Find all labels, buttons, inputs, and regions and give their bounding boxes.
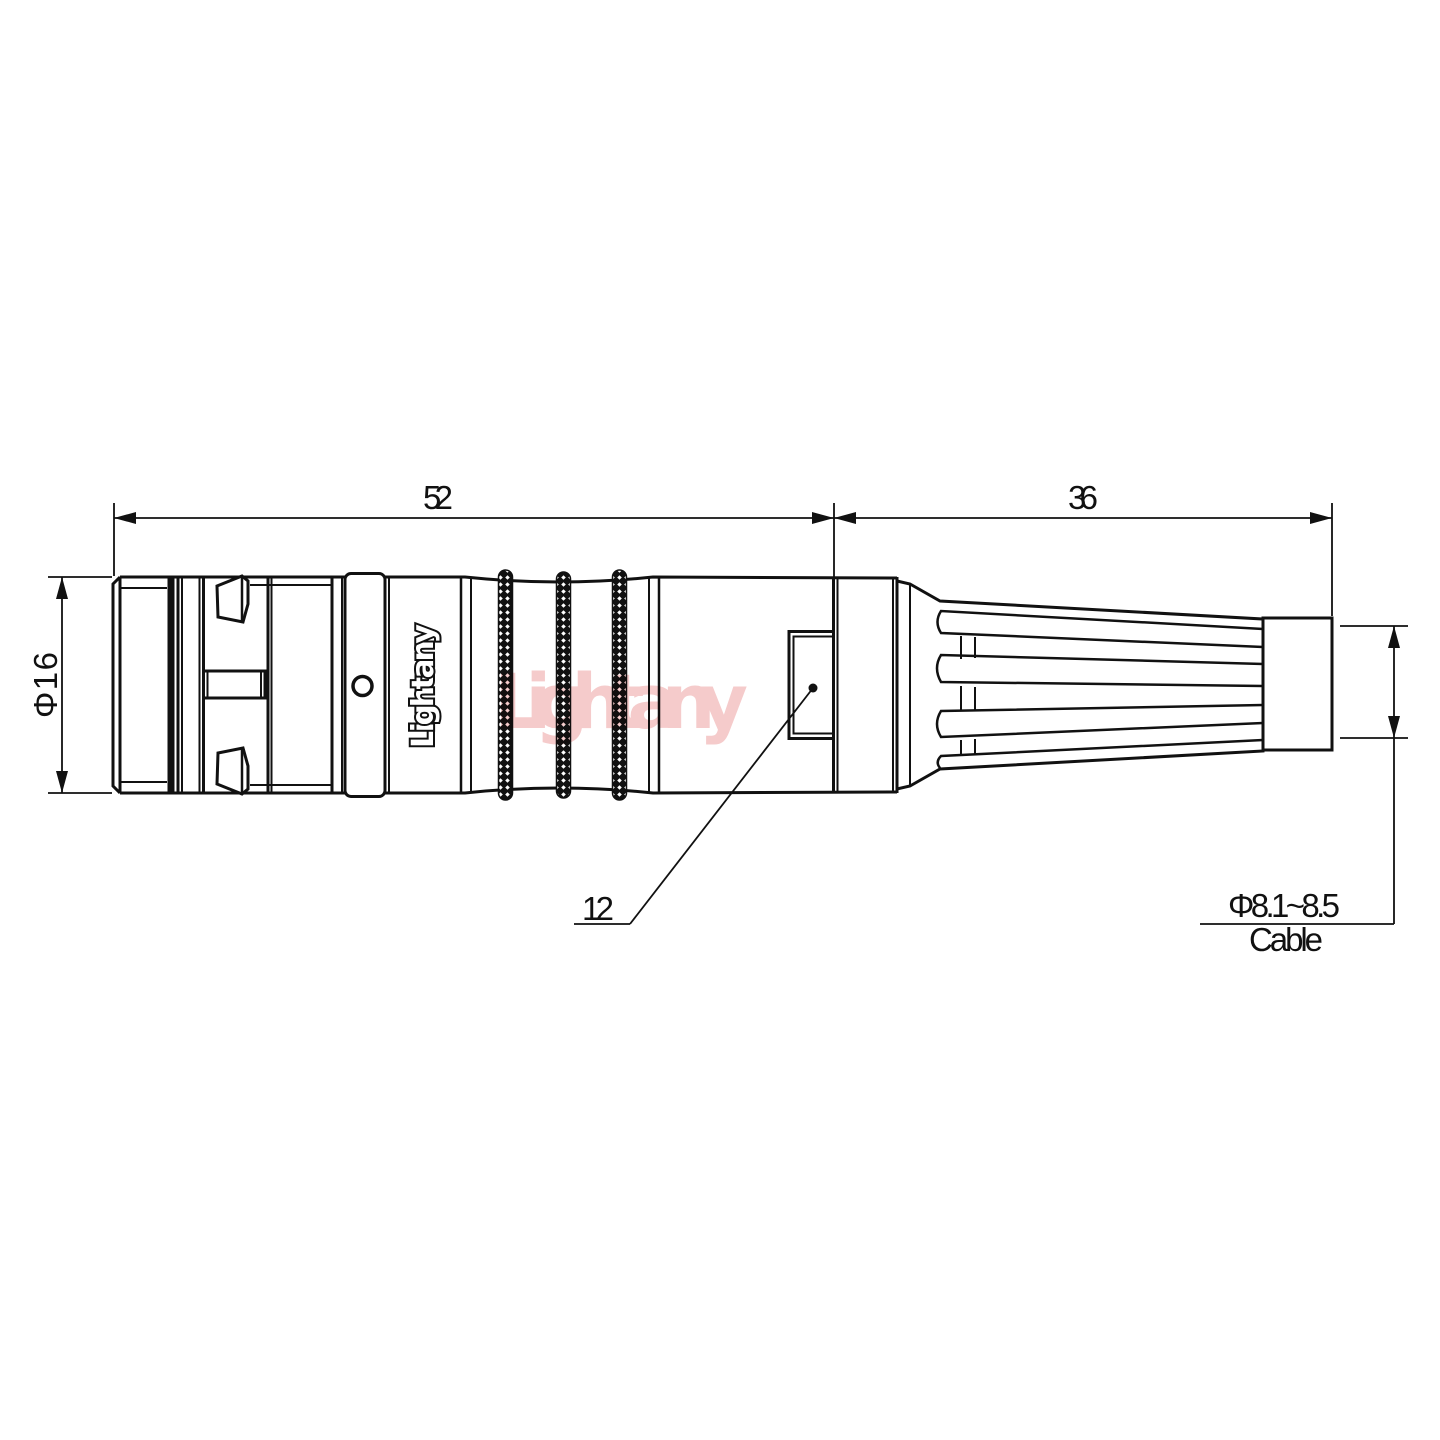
dim-12-label: 12: [582, 890, 614, 927]
technical-drawing: 52 36 Φ16 12 Φ8.1~8.5 Cable Lightany: [0, 0, 1440, 1440]
dim-36-label: 36: [1068, 479, 1098, 516]
dim-cable-word-label: Cable: [1249, 921, 1323, 958]
arrowhead: [812, 512, 834, 524]
dimension-52: 52: [114, 479, 834, 577]
dim-cable-range-label: Φ8.1~8.5: [1228, 887, 1340, 924]
arrowhead: [56, 577, 68, 599]
arrowhead: [1310, 512, 1332, 524]
dim-52-label: 52: [423, 479, 453, 516]
drawing-page: 52 36 Φ16 12 Φ8.1~8.5 Cable Lightany: [0, 0, 1440, 1440]
brand-logo-text: Lightany: [406, 622, 441, 748]
collar-hole: [353, 677, 372, 696]
arrowhead: [834, 512, 856, 524]
dimension-phi16: Φ16: [27, 577, 112, 793]
watermark-text: Lightany: [494, 657, 750, 746]
arrowhead: [1388, 626, 1400, 648]
dim-phi16-label: Φ16: [27, 652, 64, 718]
collar: [345, 574, 389, 797]
arrowhead: [114, 512, 136, 524]
arrowhead: [56, 771, 68, 793]
arrowhead: [1388, 716, 1400, 738]
